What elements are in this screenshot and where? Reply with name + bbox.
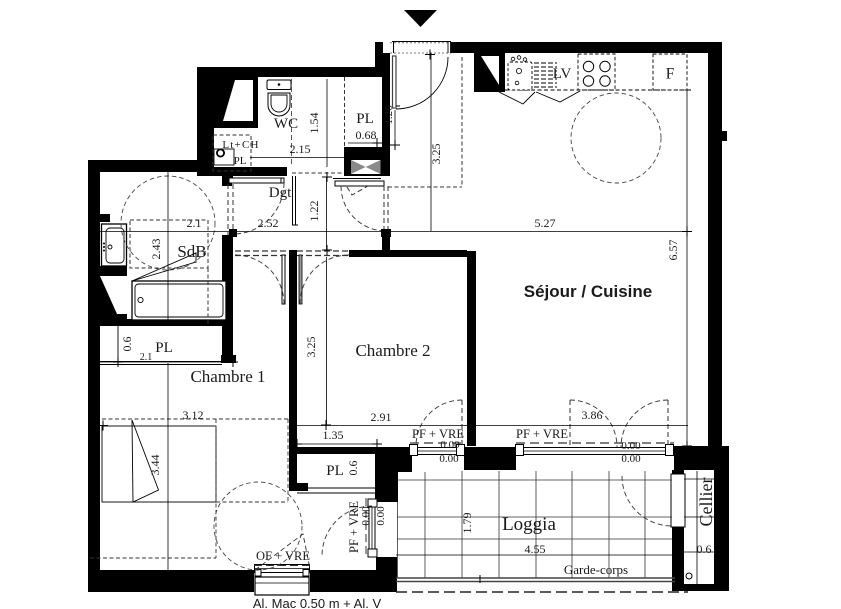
svg-text:0.00: 0.00 (360, 506, 372, 526)
svg-text:3.44: 3.44 (148, 455, 162, 476)
svg-text:6.57: 6.57 (666, 240, 680, 261)
svg-text:Chambre 1: Chambre 1 (190, 367, 265, 386)
svg-text:SdB: SdB (177, 242, 206, 261)
svg-text:Garde-corps: Garde-corps (564, 562, 628, 577)
svg-text:WC: WC (274, 116, 298, 132)
svg-text:3.86: 3.86 (582, 408, 603, 422)
svg-text:1.79: 1.79 (460, 513, 474, 534)
svg-text:3.25: 3.25 (429, 144, 443, 165)
svg-text:1.22: 1.22 (307, 201, 321, 222)
svg-text:PL: PL (234, 155, 247, 167)
svg-text:2.43: 2.43 (149, 239, 163, 260)
svg-text:1.35: 1.35 (323, 428, 344, 442)
svg-text:PF + VRE: PF + VRE (516, 427, 568, 441)
svg-text:Chambre 2: Chambre 2 (355, 341, 430, 360)
svg-text:Loggia: Loggia (502, 514, 556, 535)
svg-text:0.00: 0.00 (621, 453, 641, 465)
svg-text:PL: PL (326, 463, 344, 479)
svg-text:0.00: 0.00 (621, 440, 641, 452)
svg-text:0.00: 0.00 (375, 506, 387, 526)
svg-text:3.25: 3.25 (304, 337, 318, 358)
svg-text:4.55: 4.55 (525, 542, 546, 556)
svg-text:3.12: 3.12 (183, 408, 204, 422)
svg-text:5.27: 5.27 (535, 216, 556, 230)
svg-text:2.1: 2.1 (187, 216, 202, 230)
svg-text:0.6: 0.6 (346, 461, 360, 476)
svg-text:Cellier: Cellier (696, 478, 716, 527)
svg-text:2.1: 2.1 (140, 352, 153, 363)
svg-text:0.00: 0.00 (440, 439, 460, 451)
svg-text:Lt+CH: Lt+CH (222, 139, 259, 151)
svg-text:Dgt: Dgt (269, 185, 292, 201)
svg-text:0.00: 0.00 (439, 453, 459, 465)
svg-text:2.91: 2.91 (371, 410, 392, 424)
svg-text:0.6: 0.6 (120, 337, 134, 352)
svg-text:F: F (666, 66, 675, 83)
svg-text:PL: PL (356, 111, 374, 127)
svg-text:0.68: 0.68 (356, 128, 377, 142)
svg-text:Séjour / Cuisine: Séjour / Cuisine (524, 282, 652, 301)
svg-text:0.6: 0.6 (697, 542, 712, 556)
svg-text:1.54: 1.54 (307, 113, 321, 134)
svg-text:LV: LV (553, 66, 572, 82)
svg-text:2.15: 2.15 (290, 142, 311, 156)
svg-text:1.26: 1.26 (383, 105, 395, 125)
svg-text:PF + VRE: PF + VRE (347, 501, 361, 553)
svg-text:2.52: 2.52 (258, 216, 279, 230)
svg-text:OF + VRE: OF + VRE (256, 549, 310, 563)
svg-text:Al. Mac 0.50 m + Al. V: Al. Mac 0.50 m + Al. V (253, 596, 382, 609)
svg-text:PL: PL (155, 340, 173, 356)
